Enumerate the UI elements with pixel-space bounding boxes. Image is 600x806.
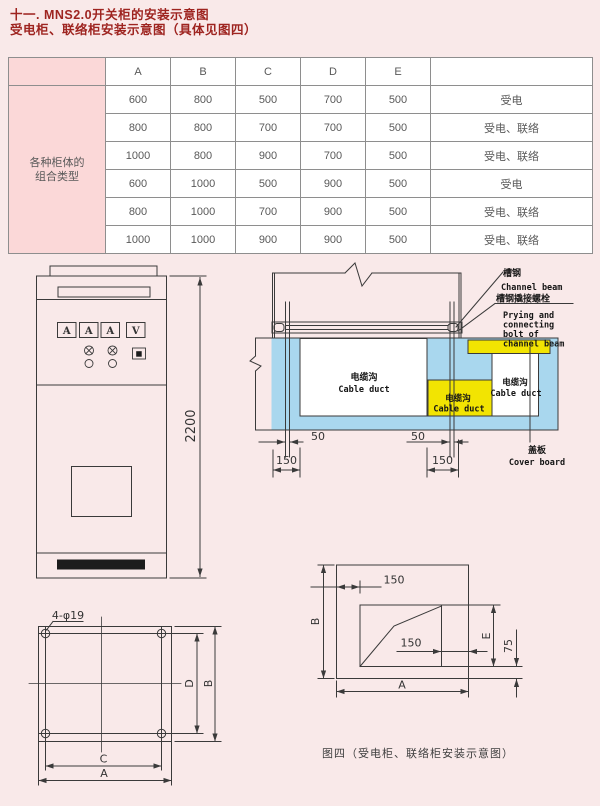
cabinet-front-view: A A A V	[37, 266, 207, 578]
table-cell: 受电、联络	[431, 226, 593, 254]
cabinet-outline	[37, 276, 167, 578]
meter-row: A A A V	[58, 323, 146, 338]
cabinet-nameplate	[58, 287, 150, 297]
break-symbol	[345, 263, 372, 286]
table-cell: 800	[106, 198, 171, 226]
type-column-header	[431, 58, 593, 86]
column-header-b: B	[171, 58, 236, 86]
table-cell: 500	[236, 86, 301, 114]
table-cell: 800	[171, 142, 236, 170]
column-header-e: E	[366, 58, 431, 86]
dim-label-d: D	[183, 679, 196, 687]
base-outline	[39, 627, 172, 742]
bolt-label-en: connecting	[503, 320, 554, 331]
table-cell: 800	[171, 86, 236, 114]
dim-label-150: 150	[276, 454, 297, 467]
table-cell: 1000	[106, 142, 171, 170]
row-group-header: 各种柜体的 组合类型	[9, 86, 106, 254]
cable-duct-label-en: Cable duct	[433, 405, 484, 415]
table-cell: 1000	[171, 198, 236, 226]
catalog-page: 十一. MNS2.0开关柜的安装示意图 受电柜、联络柜安装示意图（具体见图四） …	[0, 0, 600, 806]
table-cell: 1000	[171, 170, 236, 198]
table-cell: 受电、联络	[431, 114, 593, 142]
table-cell: 500	[366, 226, 431, 254]
dim-label-50: 50	[411, 430, 425, 443]
height-dim-label: 2200	[184, 409, 199, 442]
dim-label-a: A	[100, 767, 108, 780]
figure4-install-view: 150 150 B A	[309, 565, 522, 760]
table-row: 各种柜体的 组合类型600800500700500受电	[9, 86, 593, 114]
table-cell: 700	[301, 86, 366, 114]
channel-beam-label-en: Channel beam	[501, 283, 562, 293]
dim-label-150: 150	[432, 454, 453, 467]
table-cell: 500	[366, 170, 431, 198]
pushbutton-icon	[109, 360, 117, 368]
table-body: 各种柜体的 组合类型600800500700500受电8008007007005…	[9, 86, 593, 254]
title-line1: 十一. MNS2.0开关柜的安装示意图	[10, 8, 257, 23]
title-line2: 受电柜、联络柜安装示意图（具体见图四）	[10, 23, 257, 38]
dim-label-b: B	[309, 618, 322, 626]
dim-150-top	[311, 581, 381, 593]
table-cell: 受电	[431, 170, 593, 198]
table-cell: 700	[301, 114, 366, 142]
base-plan-view: 4-φ19 D B C A	[29, 609, 221, 785]
table-cell: 700	[236, 114, 301, 142]
cover-board-label-cn: 盖板	[528, 444, 547, 456]
cable-duct-label-cn: 电缆沟	[445, 393, 471, 404]
channel-beam-label-cn: 槽钢	[503, 267, 521, 279]
corner-cell	[9, 58, 106, 86]
holes-label: 4-φ19	[52, 609, 84, 622]
table-cell: 900	[236, 226, 301, 254]
cable-duct-label-en: Cable duct	[338, 385, 389, 395]
table-cell: 500	[366, 198, 431, 226]
table-cell: 500	[366, 86, 431, 114]
table-cell: 受电	[431, 86, 593, 114]
page-title: 十一. MNS2.0开关柜的安装示意图 受电柜、联络柜安装示意图（具体见图四）	[10, 8, 257, 38]
table-cell: 900	[301, 226, 366, 254]
dim-label-b: B	[202, 680, 215, 688]
bolt-label-en: channel beam	[503, 340, 564, 350]
viewing-window	[72, 467, 132, 517]
cable-duct-label-cn: 电缆沟	[502, 377, 528, 388]
cover-board-label-en: Cover board	[509, 458, 565, 468]
pushbutton-icon	[85, 360, 93, 368]
column-header-d: D	[301, 58, 366, 86]
table-cell: 800	[106, 114, 171, 142]
meter-label: A	[105, 326, 114, 337]
bolt-label-en: Prying and	[503, 310, 554, 321]
table-cell: 1000	[106, 226, 171, 254]
indicator-lamps	[85, 346, 146, 368]
table-cell: 900	[301, 170, 366, 198]
meter-label: V	[131, 326, 140, 337]
table-cell: 700	[236, 198, 301, 226]
table-cell: 600	[106, 170, 171, 198]
column-header-c: C	[236, 58, 301, 86]
cabinet-top-plate	[50, 266, 157, 276]
dim-label-a: A	[398, 679, 406, 692]
table-header-row: A B C D E	[9, 58, 593, 86]
table-cell: 500	[366, 114, 431, 142]
dim-label-75: 75	[502, 639, 515, 653]
table-cell: 1000	[171, 226, 236, 254]
dim-label-150: 150	[384, 574, 405, 587]
spec-table: A B C D E 各种柜体的 组合类型600800500700500受电800…	[8, 57, 593, 254]
table-cell: 500	[236, 170, 301, 198]
ventilation-grille	[57, 560, 145, 570]
dim-label-50: 50	[311, 430, 325, 443]
column-header-a: A	[106, 58, 171, 86]
dim-label-c: C	[100, 753, 108, 766]
table-cell: 600	[106, 86, 171, 114]
table-cell: 受电、联络	[431, 142, 593, 170]
table-cell: 700	[301, 142, 366, 170]
table-cell: 500	[366, 142, 431, 170]
foundation-section-view: 槽钢 Channel beam 槽钢撬接螺栓 Prying and connec…	[250, 263, 573, 477]
meter-label: A	[62, 326, 71, 337]
dim-label-150: 150	[401, 637, 422, 650]
table-cell: 900	[236, 142, 301, 170]
break-symbol	[250, 356, 261, 371]
dim-label-e: E	[480, 632, 493, 639]
channel-beam	[272, 322, 462, 333]
table-cell: 受电、联络	[431, 198, 593, 226]
table-cell: 800	[171, 114, 236, 142]
cable-duct-label-en: Cable duct	[490, 389, 541, 399]
meter-label: A	[84, 326, 93, 337]
figure4-caption: 图四（受电柜、联络柜安装示意图）	[322, 746, 514, 760]
bolt-label-en: bolt of	[503, 330, 539, 340]
table-cell: 900	[301, 198, 366, 226]
cable-duct-label-cn: 电缆沟	[350, 371, 377, 383]
drawings: A A A V	[0, 256, 600, 806]
bolt-label-cn: 槽钢撬接螺栓	[496, 293, 550, 305]
